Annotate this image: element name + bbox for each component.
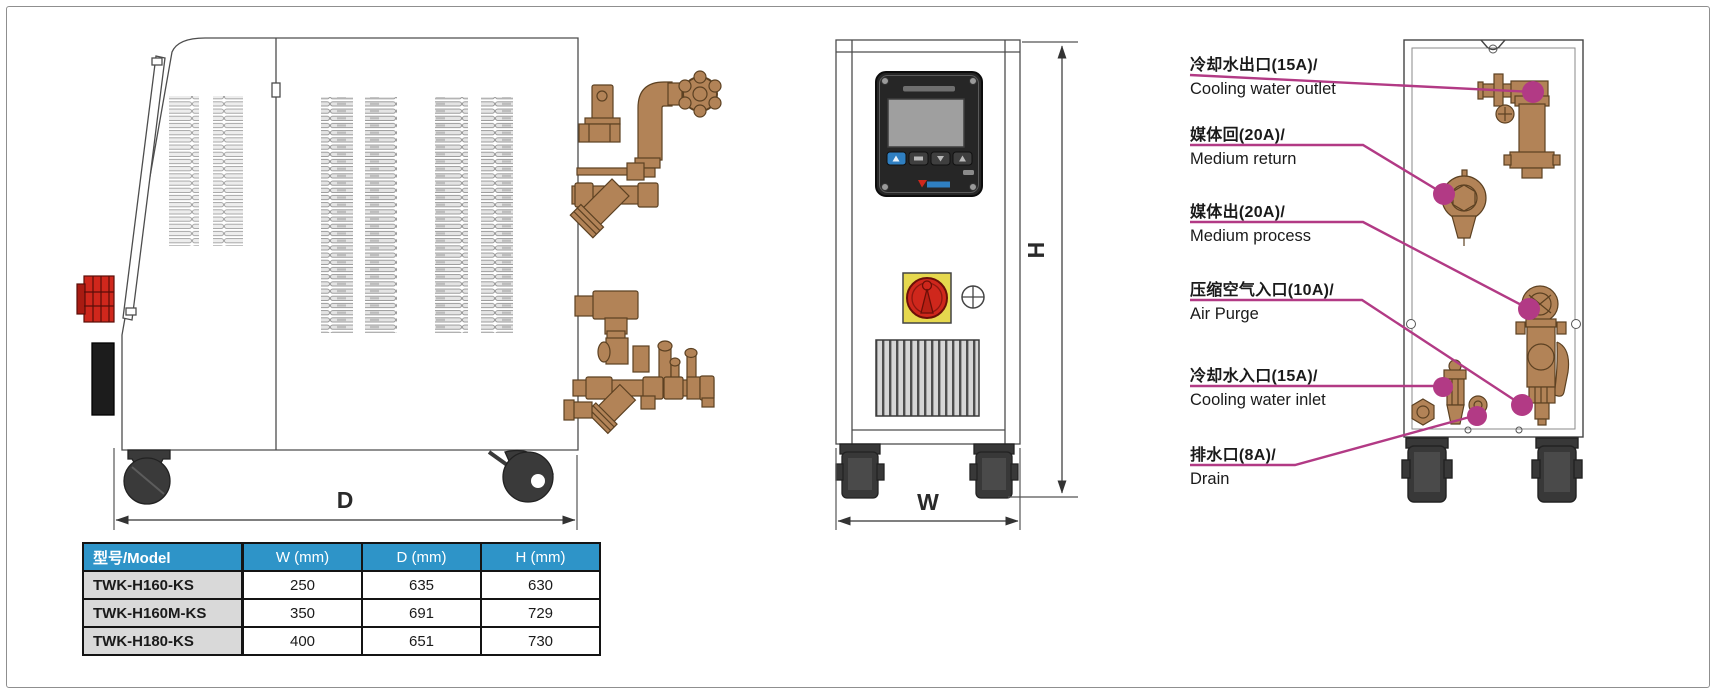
port-label-en: Drain	[1190, 468, 1415, 491]
port-label-air-purge: 压缩空气入口(10A)/ Air Purge	[1190, 279, 1415, 326]
front-screw	[962, 286, 984, 308]
port-marker-dot	[1467, 406, 1487, 426]
w-cell: 350	[243, 599, 363, 627]
dim-W-label: W	[917, 489, 939, 515]
port-label-zh: 冷却水出口(15A)/	[1190, 54, 1415, 77]
side-wheel-front	[124, 450, 170, 504]
port-label-medium-process: 媒体出(20A)/ Medium process	[1190, 201, 1415, 248]
port-label-medium-return: 媒体回(20A)/ Medium return	[1190, 124, 1415, 171]
main-power-switch	[903, 273, 951, 323]
side-power-switch	[77, 276, 114, 322]
side-view-drawing: D	[77, 38, 721, 530]
h-cell: 730	[481, 627, 600, 655]
table-header-row: 型号/Model W (mm) D (mm) H (mm)	[83, 543, 600, 571]
h-cell: 630	[481, 571, 600, 599]
front-vent-grille	[876, 340, 979, 416]
dimensions-table: 型号/Model W (mm) D (mm) H (mm) TWK-H160-K…	[82, 542, 601, 656]
port-label-cooling-water-outlet: 冷却水出口(15A)/ Cooling water outlet	[1190, 54, 1415, 101]
rear-view-drawing	[1402, 40, 1583, 502]
panel-screw	[970, 184, 977, 191]
port-label-zh: 冷却水入口(15A)/	[1190, 365, 1415, 388]
port-label-en: Medium return	[1190, 148, 1415, 171]
front-wheel-left	[836, 444, 884, 498]
w-cell: 400	[243, 627, 363, 655]
port-label-zh: 排水口(8A)/	[1190, 444, 1415, 467]
d-cell: 691	[362, 599, 481, 627]
front-wheel-right	[970, 444, 1018, 498]
port-marker-dot	[1511, 394, 1533, 416]
controller-panel	[876, 72, 982, 196]
port-label-drain: 排水口(8A)/ Drain	[1190, 444, 1415, 491]
w-cell: 250	[243, 571, 363, 599]
panel-screw	[882, 78, 889, 85]
port-marker-dot	[1522, 81, 1544, 103]
port-label-en: Cooling water inlet	[1190, 389, 1415, 412]
col-header-model: 型号/Model	[83, 543, 243, 571]
front-view-drawing: W H	[836, 40, 1078, 530]
port-label-zh: 压缩空气入口(10A)/	[1190, 279, 1415, 302]
seam-hinge	[272, 83, 280, 97]
dim-D-label: D	[337, 487, 354, 513]
dim-H-label: H	[1023, 242, 1049, 259]
port-marker-dot	[1518, 298, 1540, 320]
port-label-en: Air Purge	[1190, 303, 1415, 326]
panel-screw	[882, 184, 889, 191]
panel-brand-text	[903, 86, 955, 92]
port-marker-dot	[1433, 183, 1455, 205]
port-label-en: Cooling water outlet	[1190, 78, 1415, 101]
port-label-en: Medium process	[1190, 225, 1415, 248]
model-cell: TWK-H160M-KS	[83, 599, 243, 627]
table-row: TWK-H180-KS 400 651 730	[83, 627, 600, 655]
col-header-w: W (mm)	[243, 543, 363, 571]
port-label-zh: 媒体回(20A)/	[1190, 124, 1415, 147]
table-row: TWK-H160-KS 250 635 630	[83, 571, 600, 599]
spec-sheet-page: D	[0, 0, 1716, 694]
side-electrical-box	[92, 343, 114, 415]
port-label-zh: 媒体出(20A)/	[1190, 201, 1415, 224]
panel-display-screen	[888, 99, 964, 147]
table-row: TWK-H160M-KS 350 691 729	[83, 599, 600, 627]
col-header-h: H (mm)	[481, 543, 600, 571]
rear-wheel-right	[1532, 438, 1582, 502]
port-marker-dot	[1433, 377, 1453, 397]
model-cell: TWK-H180-KS	[83, 627, 243, 655]
model-cell: TWK-H160-KS	[83, 571, 243, 599]
port-label-cooling-water-inlet: 冷却水入口(15A)/ Cooling water inlet	[1190, 365, 1415, 412]
d-cell: 651	[362, 627, 481, 655]
col-header-d: D (mm)	[362, 543, 481, 571]
d-cell: 635	[362, 571, 481, 599]
h-cell: 729	[481, 599, 600, 627]
panel-screw	[970, 78, 977, 85]
side-pipes-upper	[570, 71, 721, 238]
side-pipes-lower	[564, 291, 714, 433]
rear-screw	[1572, 320, 1581, 329]
side-wheel-rear	[489, 451, 553, 503]
hex-plug	[1412, 399, 1434, 425]
